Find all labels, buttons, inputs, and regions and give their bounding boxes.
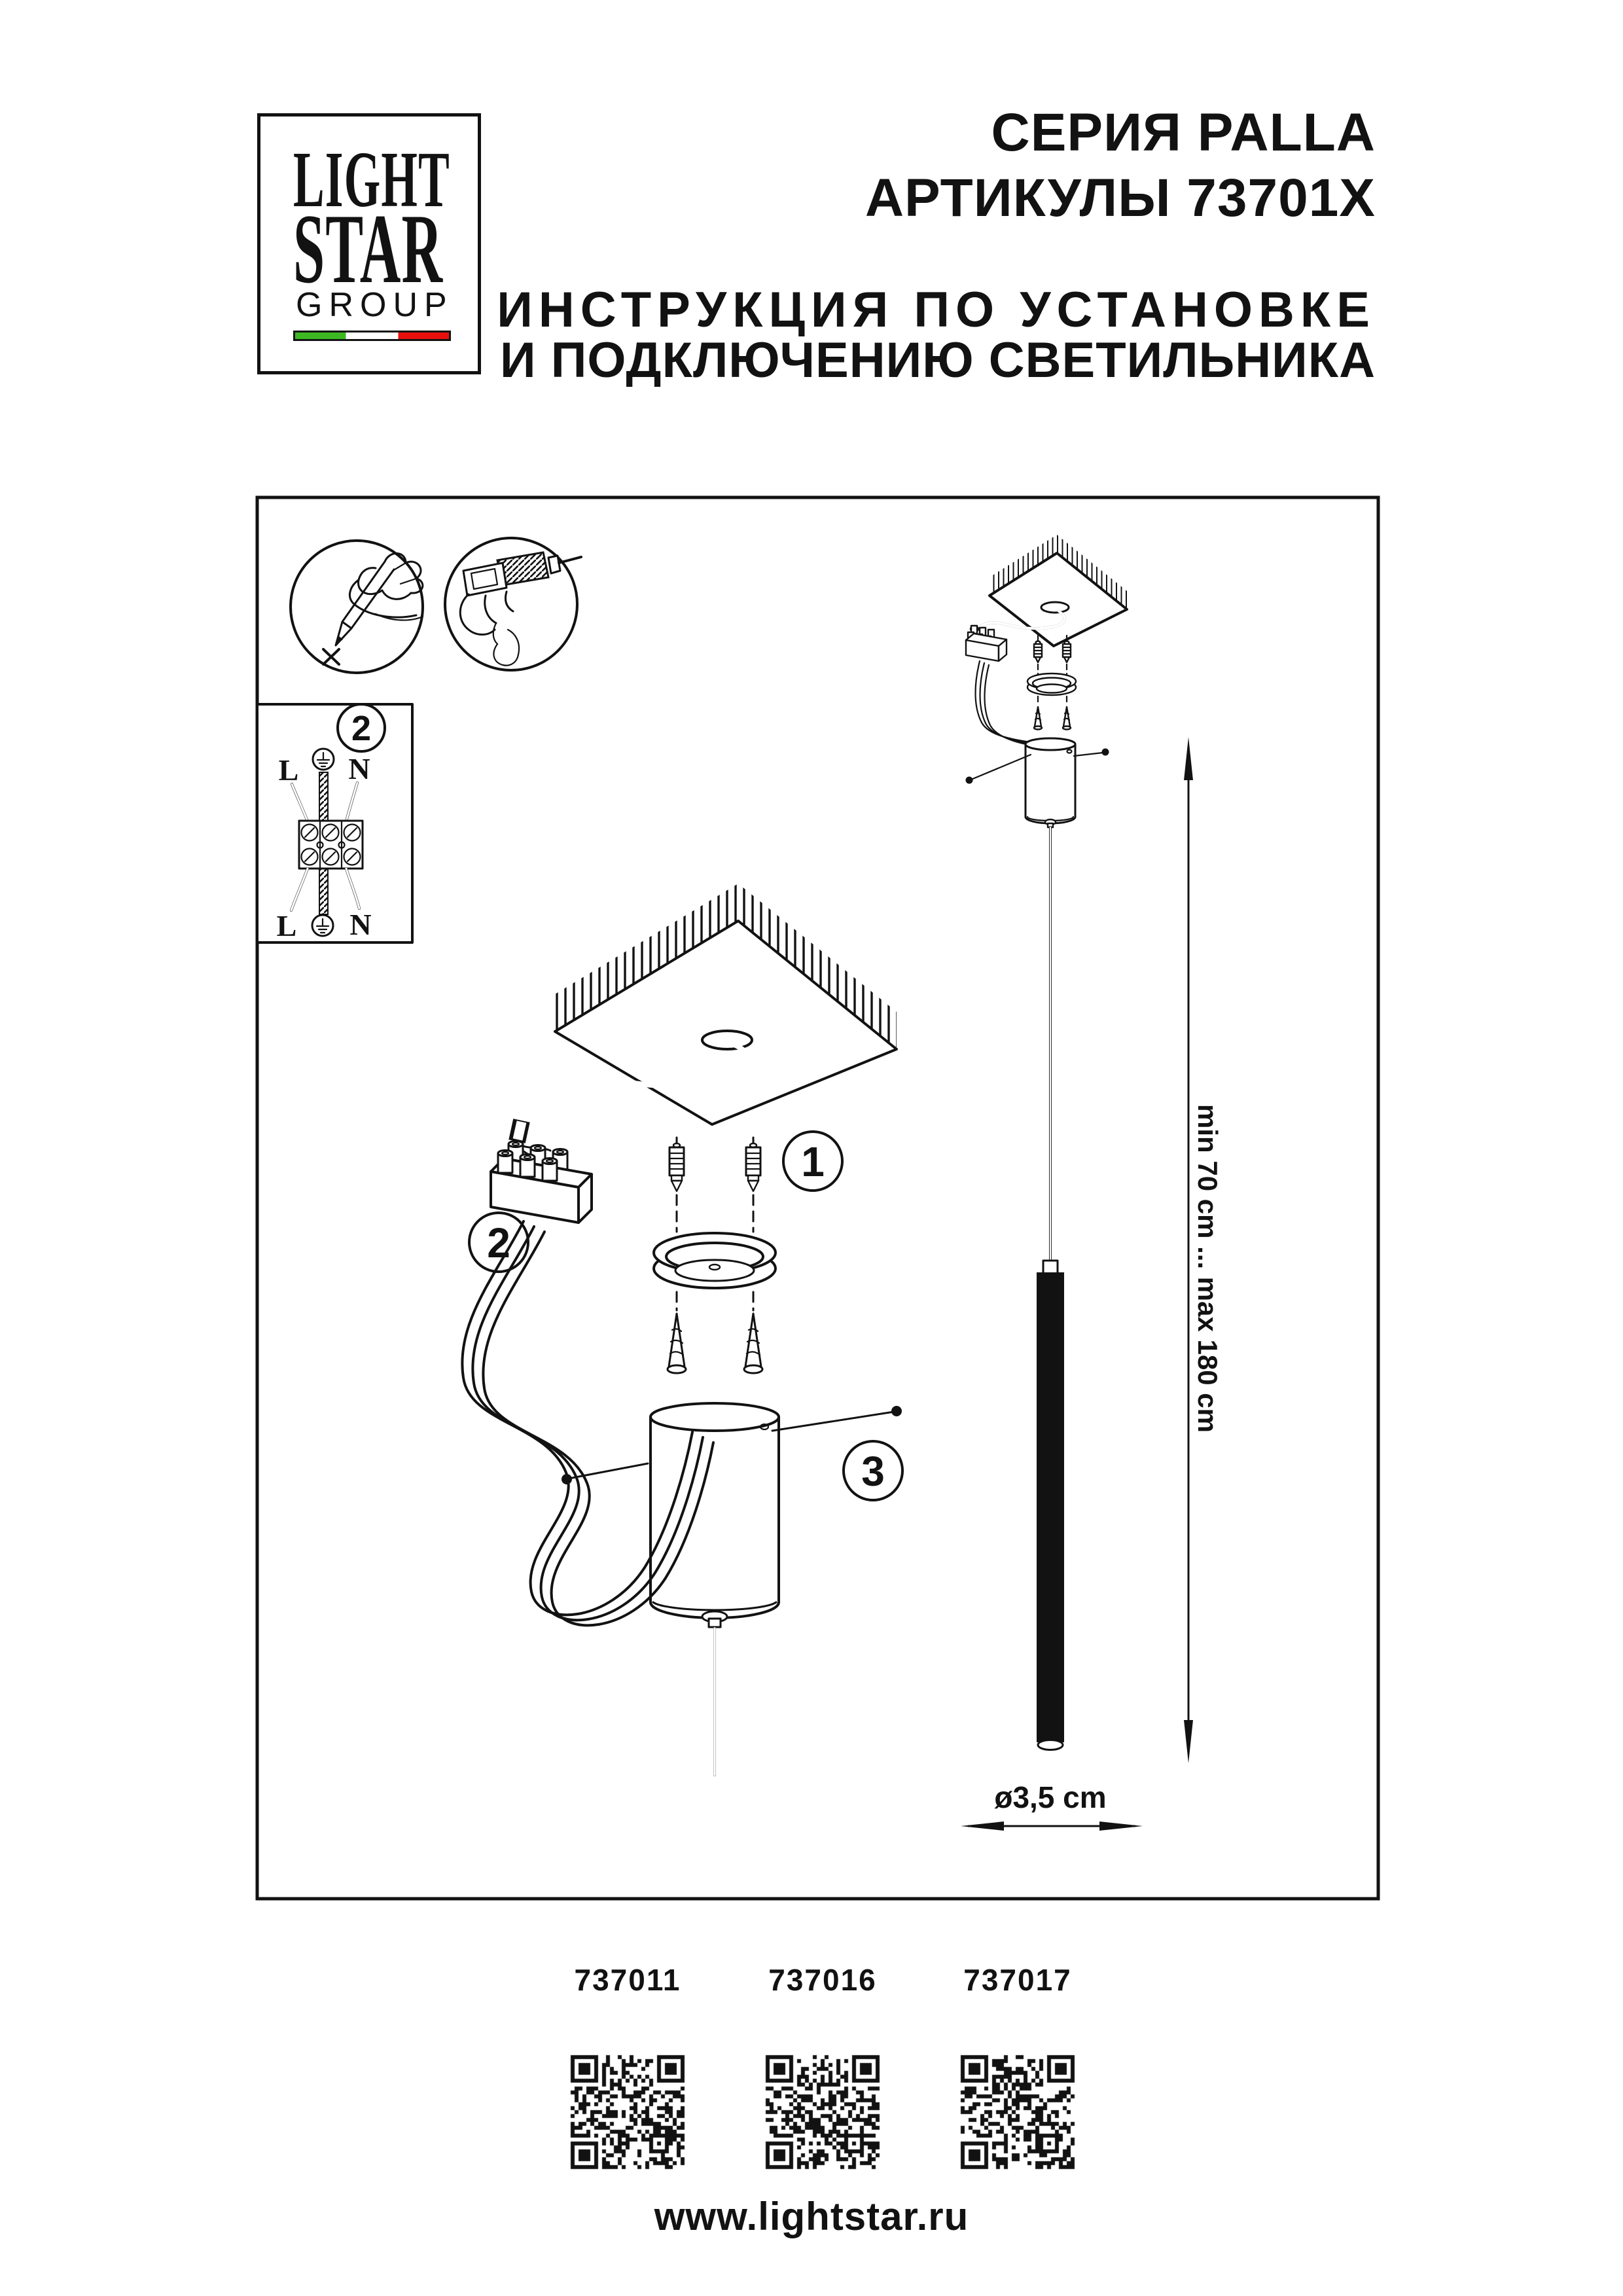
mounting-ring-small (1027, 673, 1076, 695)
exploded-view: 2 1 (462, 884, 902, 1775)
qr-code (569, 2053, 687, 2171)
pencil-mark-icon (291, 541, 423, 673)
height-dimension: min 70 cm ... max 180 cm (1184, 737, 1223, 1763)
mounting-screw (668, 1314, 686, 1373)
qr-code (959, 2053, 1077, 2171)
wire-label-n-top: N (348, 752, 370, 785)
diameter-label: ø3,5 cm (994, 1780, 1106, 1814)
mounting-screw-small (1063, 707, 1071, 730)
mounting-screw-small (1034, 707, 1042, 730)
ceiling-canopy (651, 1403, 779, 1775)
installation-diagram: 2 L N (0, 0, 1623, 2296)
ceiling-panel (555, 921, 897, 1124)
wall-anchor (669, 1138, 684, 1191)
wall-anchor (746, 1138, 760, 1191)
terminal-strip (299, 821, 363, 869)
ceiling-canopy-small (1026, 738, 1075, 827)
product-variant: 737016 (763, 1962, 882, 1998)
height-range-label: min 70 cm ... max 180 cm (1192, 1104, 1223, 1433)
step-1-number: 1 (801, 1138, 825, 1185)
article-number: 737011 (568, 1962, 687, 1998)
step-3-number: 3 (861, 1448, 885, 1495)
product-variant: 737011 (568, 1962, 687, 1998)
step-2-box-number: 2 (351, 709, 371, 748)
terminal-block-small (966, 626, 1007, 661)
pendant-tube (1037, 1272, 1064, 1742)
product-variant: 737017 (958, 1962, 1077, 1998)
cord-connector (1043, 1261, 1058, 1274)
terminal-block (491, 1141, 592, 1223)
wire-label-l-top: L (279, 753, 299, 787)
wall-anchor-small (1034, 636, 1042, 662)
diameter-dimension: ø3,5 cm (961, 1780, 1143, 1831)
drill-icon (445, 538, 581, 670)
instruction-sheet: LIGHT STAR GROUP СЕРИЯ PALLA АРТИКУЛЫ 73… (0, 0, 1623, 2296)
mounting-ring (654, 1233, 776, 1288)
wire-label-l-bottom: L (277, 909, 297, 942)
step-2-number: 2 (487, 1219, 510, 1266)
website-url: www.lightstar.ru (0, 2194, 1623, 2239)
article-number: 737017 (958, 1962, 1077, 1998)
connection-wires-small (976, 661, 1040, 746)
mounting-screw (744, 1314, 762, 1373)
wiring-diagram-box: 2 L N (257, 704, 412, 942)
wire-label-n-bottom: N (349, 908, 371, 941)
tube-diffuser (1038, 1740, 1063, 1750)
qr-code (764, 2053, 882, 2171)
article-number: 737016 (763, 1962, 882, 1998)
assembled-view: min 70 cm ... max 180 cm ø3,5 cm (961, 535, 1223, 1831)
